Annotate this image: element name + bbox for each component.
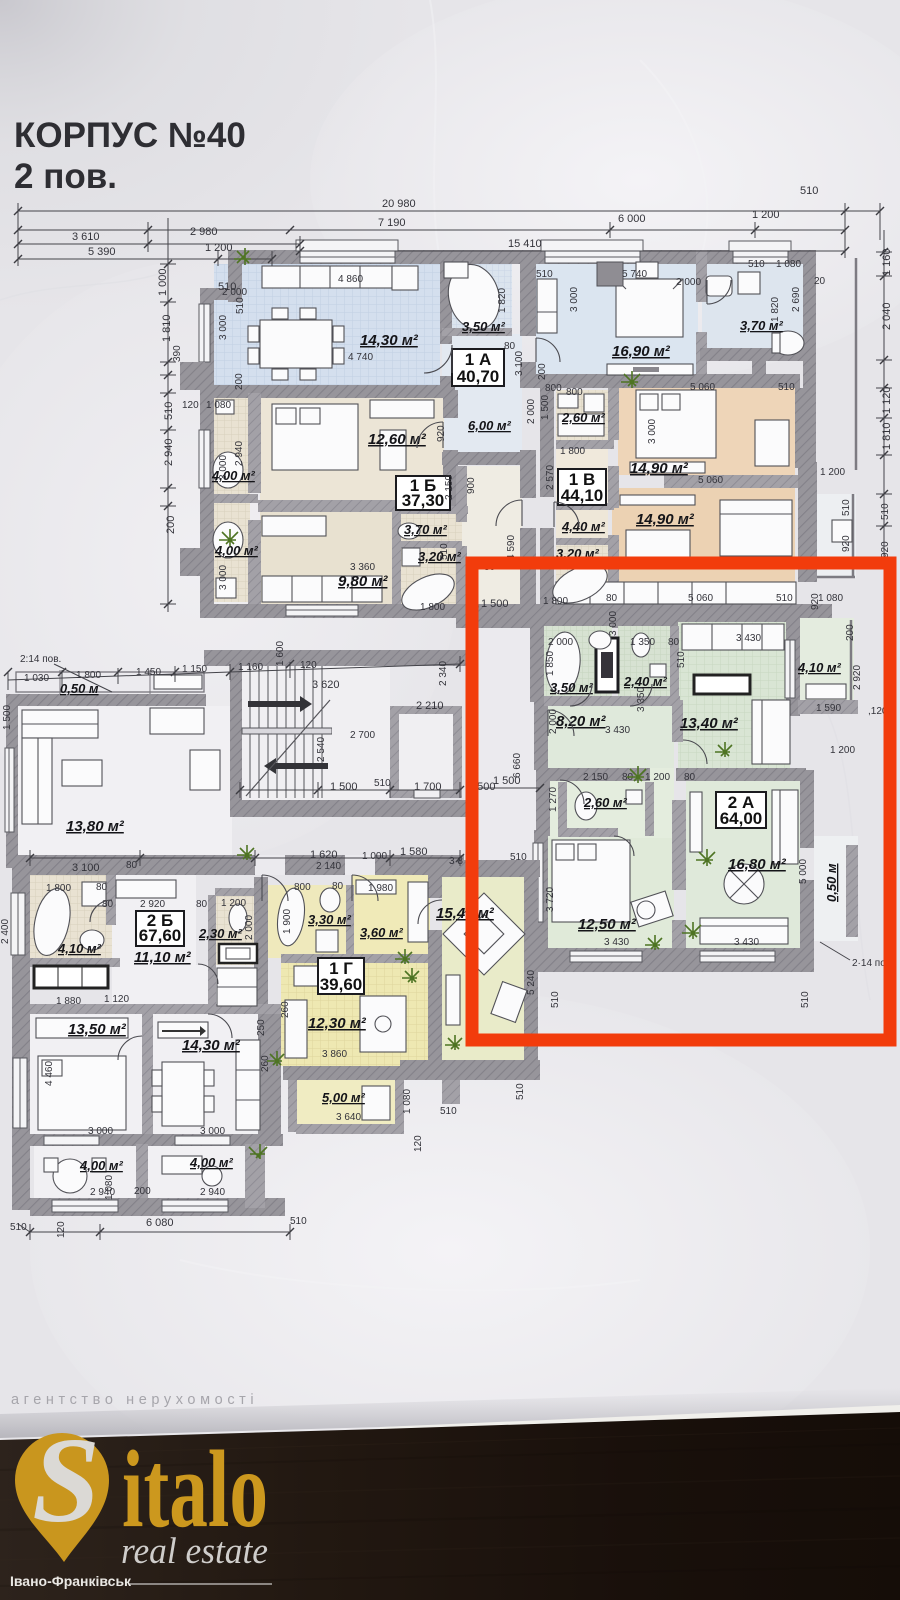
svg-text:4,10 м²: 4,10 м²: [797, 660, 842, 675]
svg-text:510: 510: [290, 1216, 307, 1227]
svg-text:6 000: 6 000: [618, 213, 646, 225]
svg-text:15,40 м²: 15,40 м²: [436, 905, 495, 922]
svg-text:2 340: 2 340: [438, 661, 449, 686]
svg-text:3 100: 3 100: [72, 862, 100, 874]
svg-text:2 400: 2 400: [0, 919, 11, 944]
svg-text:3 000: 3 000: [200, 1126, 225, 1137]
svg-text:1 810: 1 810: [881, 422, 893, 450]
svg-text:510: 510: [510, 852, 527, 863]
svg-text:1 500: 1 500: [330, 781, 358, 793]
svg-text:1 800: 1 800: [543, 596, 568, 607]
svg-text:120: 120: [182, 400, 199, 411]
svg-text:3,60 м²: 3,60 м²: [360, 925, 404, 940]
svg-text:80: 80: [606, 593, 618, 604]
svg-text:13,50 м²: 13,50 м²: [68, 1021, 127, 1038]
svg-text:80: 80: [668, 637, 680, 648]
svg-text:1 820: 1 820: [770, 297, 781, 322]
svg-text:1 080: 1 080: [206, 400, 231, 411]
svg-text:3 430: 3 430: [604, 937, 629, 948]
svg-text:1 200: 1 200: [752, 209, 780, 221]
svg-text:800: 800: [545, 383, 562, 394]
svg-text:67,60: 67,60: [139, 926, 182, 945]
svg-text:260: 260: [280, 1001, 291, 1018]
svg-text:2,60 м²: 2,60 м²: [561, 410, 606, 425]
svg-text:2 540: 2 540: [316, 737, 327, 762]
svg-text:5 060: 5 060: [688, 593, 713, 604]
svg-text:4,00 м²: 4,00 м²: [214, 543, 259, 558]
svg-text:1 450: 1 450: [136, 667, 161, 678]
svg-text:1 810: 1 810: [161, 314, 173, 342]
svg-text:2 690: 2 690: [791, 287, 802, 312]
svg-text:2 000: 2 000: [676, 277, 701, 288]
svg-text:510: 510: [374, 778, 391, 789]
svg-text:14,90 м²: 14,90 м²: [636, 511, 695, 528]
svg-text:3,70 м²: 3,70 м²: [404, 522, 448, 537]
svg-text:1 590: 1 590: [816, 703, 841, 714]
svg-text:37,30: 37,30: [402, 491, 445, 510]
svg-text:4,40 м²: 4,40 м²: [561, 519, 606, 534]
svg-text:4,00 м²: 4,00 м²: [79, 1158, 124, 1173]
svg-text:2 940: 2 940: [234, 441, 245, 466]
svg-text:510: 510: [800, 991, 811, 1008]
svg-text:1 500: 1 500: [493, 775, 521, 787]
svg-text:2 000: 2 000: [244, 915, 255, 940]
svg-text:1 080: 1 080: [402, 1089, 413, 1114]
svg-text:4 740: 4 740: [348, 352, 373, 363]
svg-text:2 000: 2 000: [222, 287, 247, 298]
svg-text:40,70: 40,70: [457, 367, 500, 386]
svg-text:1 580: 1 580: [400, 846, 428, 858]
svg-text:2 570: 2 570: [545, 465, 556, 490]
svg-text:1 900: 1 900: [282, 909, 293, 934]
svg-text:1 350: 1 350: [630, 637, 655, 648]
svg-text:16,90 м²: 16,90 м²: [612, 343, 671, 360]
svg-text:510: 510: [748, 259, 765, 270]
svg-text:15 410: 15 410: [508, 238, 542, 250]
svg-text:5 060: 5 060: [698, 475, 723, 486]
svg-text:510: 510: [439, 543, 450, 560]
svg-text:1 620: 1 620: [310, 849, 338, 861]
svg-text:2 700: 2 700: [350, 730, 375, 741]
svg-text:200: 200: [165, 516, 177, 534]
svg-text:3 000: 3 000: [218, 565, 229, 590]
svg-text:1 000: 1 000: [362, 851, 387, 862]
svg-text:1 800: 1 800: [46, 883, 71, 894]
svg-text:3 430: 3 430: [736, 633, 761, 644]
svg-text:3 620: 3 620: [312, 679, 340, 691]
svg-text:1 820: 1 820: [497, 288, 508, 313]
svg-text:80: 80: [96, 882, 108, 893]
svg-text:1 270: 1 270: [548, 787, 559, 812]
svg-text:80: 80: [684, 772, 696, 783]
svg-text:2,30 м²: 2,30 м²: [198, 926, 243, 941]
svg-text:14,30 м²: 14,30 м²: [182, 1037, 241, 1054]
svg-text:1 080: 1 080: [776, 259, 801, 270]
svg-text:1 800: 1 800: [560, 446, 585, 457]
svg-text:3 000: 3 000: [608, 611, 619, 636]
svg-text:2 150: 2 150: [444, 475, 455, 500]
svg-text:2 пов.: 2 пов.: [14, 157, 117, 196]
svg-text:80: 80: [196, 899, 208, 910]
svg-text:200: 200: [234, 373, 245, 390]
svg-text:6 080: 6 080: [146, 1217, 174, 1229]
svg-text:200: 200: [537, 363, 548, 380]
svg-text:Івано-Франківськ: Івано-Франківськ: [10, 1573, 132, 1589]
svg-text:200: 200: [134, 1186, 151, 1197]
svg-text:1 120: 1 120: [104, 994, 129, 1005]
svg-text:3,30 м²: 3,30 м²: [308, 912, 352, 927]
svg-text:3 860: 3 860: [322, 1049, 347, 1060]
svg-text:120: 120: [300, 660, 317, 671]
svg-text:3 000: 3 000: [569, 287, 580, 312]
svg-text:2 940: 2 940: [200, 1187, 225, 1198]
svg-text:3 610: 3 610: [72, 231, 100, 243]
svg-text:12,50 м²: 12,50 м²: [578, 916, 637, 933]
svg-text:3 100: 3 100: [514, 351, 525, 376]
svg-text:3,50 м²: 3,50 м²: [462, 319, 506, 334]
svg-text:1 880: 1 880: [56, 996, 81, 1007]
svg-text:6,00 м²: 6,00 м²: [468, 418, 512, 433]
svg-text:2 140: 2 140: [316, 861, 341, 872]
svg-text:3 430: 3 430: [734, 937, 759, 948]
svg-text:510: 510: [163, 402, 175, 420]
svg-text:120: 120: [56, 1221, 67, 1238]
svg-text:4,00 м²: 4,00 м²: [189, 1155, 234, 1170]
svg-text:3 000: 3 000: [88, 1126, 113, 1137]
svg-text:20: 20: [814, 276, 826, 287]
svg-text:2 000: 2 000: [548, 709, 559, 734]
svg-text:12,30 м²: 12,30 м²: [308, 1015, 367, 1032]
svg-text:5 060: 5 060: [690, 382, 715, 393]
svg-text:1 000: 1 000: [157, 268, 169, 296]
svg-text:3 430: 3 430: [605, 725, 630, 736]
svg-text:510: 510: [778, 382, 795, 393]
svg-text:1 200: 1 200: [205, 242, 233, 254]
svg-text:64,00: 64,00: [720, 809, 763, 828]
svg-text:510: 510: [841, 499, 852, 516]
svg-text:510: 510: [676, 651, 687, 668]
svg-text:1 160: 1 160: [238, 662, 263, 673]
svg-text:920: 920: [810, 593, 821, 610]
svg-text:1 500: 1 500: [540, 395, 551, 420]
svg-text:80: 80: [504, 341, 516, 352]
svg-text:2 150: 2 150: [583, 772, 608, 783]
svg-text:13,80 м²: 13,80 м²: [66, 818, 125, 835]
svg-text:920: 920: [436, 425, 447, 442]
svg-text:1 080: 1 080: [818, 593, 843, 604]
svg-text:800: 800: [294, 882, 311, 893]
svg-text:44,10: 44,10: [561, 486, 604, 505]
svg-text:9,80 м²: 9,80 м²: [338, 573, 388, 590]
svg-text:3 000: 3 000: [218, 455, 229, 480]
svg-text:250: 250: [256, 1019, 267, 1036]
svg-text:5 740: 5 740: [622, 269, 647, 280]
svg-text:800: 800: [566, 387, 583, 398]
svg-text:900: 900: [466, 477, 477, 494]
svg-text:1 200: 1 200: [221, 898, 246, 909]
svg-text:1 200: 1 200: [820, 467, 845, 478]
svg-text:5 240: 5 240: [526, 970, 537, 995]
svg-text:4,10 м²: 4,10 м²: [57, 941, 102, 956]
svg-text:real estate: real estate: [121, 1531, 268, 1572]
svg-text:13,40 м²: 13,40 м²: [680, 715, 739, 732]
svg-text:920: 920: [880, 541, 891, 558]
svg-text:1 700: 1 700: [414, 781, 442, 793]
svg-text:510: 510: [880, 503, 891, 520]
svg-text:390: 390: [172, 345, 183, 362]
svg-text:2 920: 2 920: [140, 899, 165, 910]
svg-text:260: 260: [260, 1055, 271, 1072]
svg-text:3 720: 3 720: [545, 887, 556, 912]
svg-text:7 190: 7 190: [378, 217, 406, 229]
svg-text:80: 80: [332, 881, 344, 892]
svg-text:2,60 м²: 2,60 м²: [583, 795, 628, 810]
svg-text:2 920: 2 920: [852, 665, 863, 690]
svg-text:3 360: 3 360: [350, 562, 375, 573]
svg-text:510: 510: [800, 185, 818, 197]
svg-text:3,50 м²: 3,50 м²: [550, 680, 594, 695]
svg-text:4 460: 4 460: [44, 1061, 55, 1086]
svg-text:2,40 м²: 2,40 м²: [623, 674, 668, 689]
svg-text:1 120: 1 120: [881, 386, 893, 414]
svg-text:1 150: 1 150: [182, 664, 207, 675]
svg-text:2 980: 2 980: [190, 226, 218, 238]
svg-text:1 200: 1 200: [830, 745, 855, 756]
svg-text:1 030: 1 030: [24, 673, 49, 684]
svg-text:510: 510: [776, 593, 793, 604]
svg-text:510: 510: [536, 269, 553, 280]
svg-text:5 000: 5 000: [798, 859, 809, 884]
svg-text:2 210: 2 210: [416, 700, 444, 712]
svg-text:S: S: [32, 1413, 100, 1548]
svg-text:1 850: 1 850: [545, 651, 556, 676]
svg-text:1 800: 1 800: [76, 670, 101, 681]
svg-text:200: 200: [845, 624, 856, 641]
svg-text:2 000: 2 000: [548, 637, 573, 648]
svg-text:14,30 м²: 14,30 м²: [360, 332, 419, 349]
svg-text:16,80 м²: 16,80 м²: [728, 856, 787, 873]
svg-text:4 860: 4 860: [338, 274, 363, 285]
svg-text:510: 510: [235, 297, 246, 314]
svg-text:2 040: 2 040: [881, 302, 893, 330]
svg-text:2:14 пов.: 2:14 пов.: [20, 654, 61, 665]
svg-text:5 390: 5 390: [88, 246, 116, 258]
svg-text:510: 510: [10, 1222, 27, 1233]
svg-text:510: 510: [515, 1083, 526, 1100]
svg-text:1 080: 1 080: [104, 1175, 115, 1200]
svg-text:5,00 м²: 5,00 м²: [322, 1090, 366, 1105]
svg-text:510: 510: [550, 991, 561, 1008]
svg-text:920: 920: [841, 535, 852, 552]
svg-text:агентство нерухомості: агентство нерухомості: [11, 1392, 258, 1408]
svg-text:14,90 м²: 14,90 м²: [630, 460, 689, 477]
svg-text:3 000: 3 000: [218, 315, 229, 340]
svg-text:1 500: 1 500: [2, 705, 13, 730]
svg-text:11,10 м²: 11,10 м²: [134, 949, 192, 966]
svg-text:2 940: 2 940: [163, 438, 175, 466]
svg-text:1 800: 1 800: [420, 602, 445, 613]
svg-text:39,60: 39,60: [320, 975, 363, 994]
svg-text:20 980: 20 980: [382, 198, 416, 210]
svg-text:120: 120: [413, 1135, 424, 1152]
svg-text:КОРПУС №40: КОРПУС №40: [14, 116, 246, 155]
svg-text:1 200: 1 200: [645, 772, 670, 783]
svg-text:3 640: 3 640: [336, 1112, 361, 1123]
svg-text:3 000: 3 000: [647, 419, 658, 444]
svg-text:1 500: 1 500: [481, 598, 509, 610]
svg-text:2 000: 2 000: [526, 399, 537, 424]
svg-text:0,50 м: 0,50 м: [824, 863, 839, 902]
svg-text:4 590: 4 590: [506, 535, 517, 560]
svg-text:1 600: 1 600: [275, 641, 286, 666]
svg-text:510: 510: [440, 1106, 457, 1117]
